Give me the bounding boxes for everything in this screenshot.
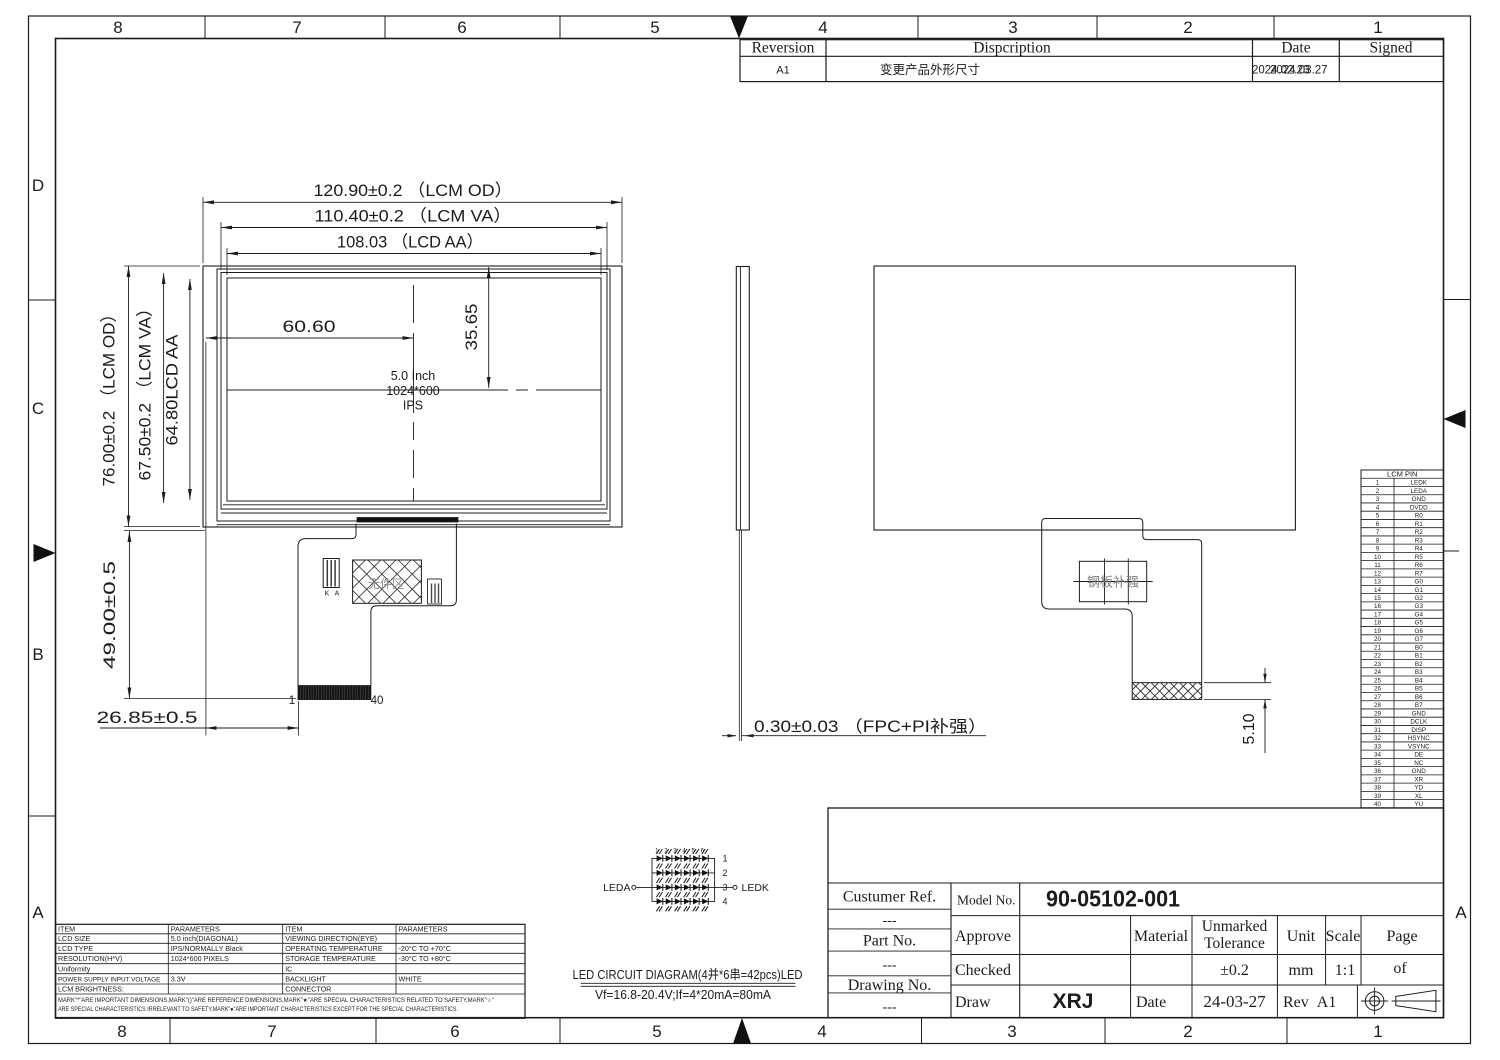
svg-text:Reversion: Reversion (752, 40, 815, 57)
svg-text:1: 1 (723, 854, 728, 864)
svg-text:A: A (1455, 903, 1467, 922)
svg-text:40: 40 (371, 695, 384, 707)
svg-text:B2: B2 (1415, 661, 1423, 668)
svg-text:3: 3 (1008, 18, 1017, 37)
svg-text:8: 8 (117, 1022, 126, 1041)
svg-text:钢板补强: 钢板补强 (1087, 575, 1139, 590)
svg-text:Scale: Scale (1326, 928, 1361, 945)
svg-text:B6: B6 (1415, 694, 1423, 701)
svg-text:34: 34 (1374, 752, 1382, 759)
svg-text:39: 39 (1374, 793, 1382, 800)
svg-text:G7: G7 (1415, 636, 1424, 643)
svg-text:5: 5 (652, 1022, 661, 1041)
svg-text:7: 7 (1376, 529, 1380, 536)
svg-text:LCM BRIGHTNESS:: LCM BRIGHTNESS: (58, 985, 124, 994)
svg-text:15: 15 (1374, 595, 1382, 602)
svg-text:DVDD: DVDD (1410, 504, 1428, 511)
svg-text:3: 3 (1376, 496, 1380, 503)
svg-text:Rev A1: Rev A1 (1283, 994, 1336, 1011)
svg-text:9: 9 (1376, 546, 1380, 553)
svg-text:40: 40 (1374, 801, 1382, 808)
svg-text:2: 2 (1183, 1022, 1192, 1041)
svg-text:90-05102-001: 90-05102-001 (1046, 886, 1180, 912)
svg-text:D: D (32, 176, 44, 195)
svg-text:R3: R3 (1415, 537, 1424, 544)
svg-text:PARAMETERS: PARAMETERS (171, 925, 220, 934)
svg-text:-20°C TO +70°C: -20°C TO +70°C (399, 944, 451, 953)
svg-text:33: 33 (1374, 743, 1382, 750)
svg-text:R2: R2 (1415, 529, 1424, 536)
svg-text:4: 4 (1376, 504, 1380, 511)
svg-text:DCLK: DCLK (1410, 719, 1428, 726)
svg-text:18: 18 (1374, 620, 1382, 627)
svg-text:of: of (1393, 960, 1407, 977)
svg-text:R0: R0 (1415, 513, 1424, 520)
svg-text:A: A (32, 903, 44, 922)
svg-text:30: 30 (1374, 719, 1382, 726)
svg-text:17: 17 (1374, 611, 1382, 618)
svg-text:Tolerance: Tolerance (1204, 935, 1265, 952)
svg-text:G1: G1 (1415, 587, 1424, 594)
svg-text:31: 31 (1374, 727, 1382, 734)
svg-text:G3: G3 (1415, 603, 1424, 610)
svg-text:LCD TYPE: LCD TYPE (58, 944, 93, 953)
svg-text:32: 32 (1374, 735, 1382, 742)
svg-text:26.85±0.5: 26.85±0.5 (97, 708, 198, 727)
svg-text:R1: R1 (1415, 521, 1424, 528)
svg-text:19: 19 (1374, 628, 1382, 635)
svg-text:38: 38 (1374, 785, 1382, 792)
svg-text:1: 1 (1373, 1022, 1382, 1041)
svg-text:22: 22 (1374, 653, 1382, 660)
svg-text:G2: G2 (1415, 595, 1424, 602)
svg-text:C: C (32, 399, 44, 418)
svg-text:VSYNC: VSYNC (1408, 743, 1430, 750)
svg-text:Date: Date (1136, 994, 1166, 1011)
svg-text:ITEM: ITEM (58, 925, 75, 934)
svg-text:1:1: 1:1 (1335, 962, 1355, 979)
svg-text:ITEM: ITEM (285, 925, 302, 934)
svg-text:Dispcription: Dispcription (973, 40, 1051, 57)
svg-text:16: 16 (1374, 603, 1382, 610)
svg-text:4: 4 (723, 897, 728, 907)
svg-text:无件区: 无件区 (368, 577, 404, 591)
svg-text:LED CIRCUIT DIAGRAM(4并*6串=42pc: LED CIRCUIT DIAGRAM(4并*6串=42pcs)LED (573, 967, 803, 982)
svg-text:27: 27 (1374, 694, 1382, 701)
svg-text:Uniformity: Uniformity (58, 964, 91, 973)
svg-text:Unmarked: Unmarked (1202, 918, 1268, 935)
svg-text:G6: G6 (1415, 628, 1424, 635)
svg-text:11: 11 (1374, 562, 1381, 569)
svg-text:2: 2 (1376, 488, 1380, 495)
svg-text:60.60: 60.60 (283, 317, 336, 336)
svg-text:DE: DE (1414, 752, 1423, 759)
svg-text:0.30±0.03 （FPC+PI补强）: 0.30±0.03 （FPC+PI补强） (754, 717, 987, 736)
svg-text:ARE SPECIAL CHARACTERISTICS IR: ARE SPECIAL CHARACTERISTICS IRRELEVANT T… (58, 1006, 458, 1013)
svg-text:B1: B1 (1415, 653, 1423, 660)
svg-text:mm: mm (1289, 962, 1314, 979)
svg-text:---: --- (883, 1000, 897, 1015)
svg-text:49.00±0.5: 49.00±0.5 (100, 561, 119, 669)
svg-text:B: B (32, 645, 43, 664)
svg-text:B3: B3 (1415, 669, 1423, 676)
svg-text:20: 20 (1374, 636, 1382, 643)
svg-text:LCD SIZE: LCD SIZE (58, 934, 91, 943)
svg-text:Signed: Signed (1369, 40, 1412, 57)
svg-text:Unit: Unit (1287, 928, 1316, 945)
svg-text:DISP: DISP (1411, 727, 1426, 734)
svg-text:PARAMETERS: PARAMETERS (399, 925, 448, 934)
svg-text:IC: IC (285, 964, 292, 973)
svg-text:HSYNC: HSYNC (1408, 735, 1430, 742)
svg-text:G0: G0 (1415, 579, 1424, 586)
svg-text:Drawing No.: Drawing No. (848, 977, 932, 994)
svg-text:120.90±0.2 （LCM OD）: 120.90±0.2 （LCM OD） (314, 181, 513, 200)
svg-text:B7: B7 (1415, 702, 1423, 709)
svg-text:GND: GND (1412, 496, 1426, 503)
svg-text:35.65: 35.65 (462, 304, 481, 351)
svg-text:36: 36 (1374, 768, 1382, 775)
svg-text:28: 28 (1374, 702, 1382, 709)
svg-text:Draw: Draw (955, 994, 991, 1011)
svg-text:LCM PIN: LCM PIN (1387, 470, 1417, 479)
svg-text:RESOLUTION(H*V): RESOLUTION(H*V) (58, 954, 122, 963)
svg-text:8: 8 (113, 18, 122, 37)
svg-text:-30°C TO +80°C: -30°C TO +80°C (399, 954, 451, 963)
svg-text:YU: YU (1414, 801, 1423, 808)
svg-text:29: 29 (1374, 710, 1382, 717)
svg-text:1: 1 (1376, 480, 1380, 487)
svg-text:LEDK: LEDK (742, 882, 769, 894)
svg-text:12: 12 (1374, 570, 1382, 577)
svg-text:5.0 Inch: 5.0 Inch (391, 369, 436, 383)
svg-text:POWER SUPPLY INPUT VOLTAGE: POWER SUPPLY INPUT VOLTAGE (58, 976, 160, 983)
svg-text:YD: YD (1414, 785, 1423, 792)
svg-text:25: 25 (1374, 677, 1382, 684)
svg-text:A: A (335, 591, 340, 598)
svg-text:7: 7 (292, 18, 301, 37)
svg-text:NC: NC (1414, 760, 1424, 767)
svg-text:LEDK: LEDK (1411, 480, 1428, 487)
svg-text:5.10: 5.10 (1241, 713, 1258, 744)
svg-text:1: 1 (1373, 18, 1382, 37)
svg-text:1024*600: 1024*600 (386, 384, 440, 398)
svg-text:13: 13 (1374, 579, 1382, 586)
svg-text:STORAGE TEMPERATURE: STORAGE TEMPERATURE (285, 954, 376, 963)
svg-text:XR: XR (1414, 776, 1423, 783)
svg-text:±0.2: ±0.2 (1220, 962, 1249, 979)
svg-text:IPS: IPS (403, 399, 423, 413)
svg-text:Model No.: Model No. (957, 893, 1016, 908)
svg-text:4: 4 (818, 18, 827, 37)
svg-text:6: 6 (1376, 521, 1380, 528)
svg-text:5.0 inch(DIAGONAL): 5.0 inch(DIAGONAL) (171, 934, 238, 943)
svg-text:8: 8 (1376, 537, 1380, 544)
svg-text:LEDA: LEDA (603, 882, 630, 894)
svg-text:5: 5 (650, 18, 659, 37)
svg-text:Part No.: Part No. (863, 933, 916, 950)
svg-text:WHITE: WHITE (399, 974, 422, 983)
svg-text:A1: A1 (776, 65, 789, 77)
svg-text:---: --- (883, 914, 897, 929)
svg-text:4: 4 (817, 1022, 826, 1041)
svg-text:6: 6 (457, 18, 466, 37)
svg-text:Checked: Checked (955, 962, 1011, 979)
svg-text:5: 5 (1376, 513, 1380, 520)
svg-text:2: 2 (1183, 18, 1192, 37)
svg-text:Vf=16.8-20.4V;If=4*20mA=80mA: Vf=16.8-20.4V;If=4*20mA=80mA (595, 987, 771, 1002)
svg-text:37: 37 (1374, 776, 1382, 783)
svg-text:110.40±0.2 （LCM VA）: 110.40±0.2 （LCM VA） (315, 207, 512, 226)
svg-text:7: 7 (267, 1022, 276, 1041)
svg-text:B0: B0 (1415, 644, 1423, 651)
svg-text:VIEWING DIRECTION(EYE): VIEWING DIRECTION(EYE) (285, 934, 377, 943)
svg-text:1: 1 (289, 695, 295, 707)
svg-text:24: 24 (1374, 669, 1382, 676)
svg-text:R6: R6 (1415, 562, 1424, 569)
svg-text:Custumer Ref.: Custumer Ref. (843, 889, 936, 906)
svg-text:XL: XL (1415, 793, 1423, 800)
svg-text:LEDA: LEDA (1411, 488, 1428, 495)
svg-text:14: 14 (1374, 587, 1382, 594)
svg-text:变更产品外形尺寸: 变更产品外形尺寸 (880, 62, 980, 77)
svg-text:6: 6 (450, 1022, 459, 1041)
svg-text:R7: R7 (1415, 570, 1424, 577)
svg-text:GND: GND (1412, 710, 1426, 717)
svg-text:2: 2 (723, 868, 728, 878)
svg-text:26: 26 (1374, 686, 1382, 693)
svg-text:2024.03.27: 2024.03.27 (1270, 65, 1328, 77)
svg-text:G4: G4 (1415, 611, 1424, 618)
svg-text:B5: B5 (1415, 686, 1423, 693)
svg-text:K: K (325, 591, 330, 598)
svg-text:24-03-27: 24-03-27 (1203, 992, 1266, 1011)
svg-text:10: 10 (1374, 554, 1382, 561)
svg-text:108.03 （LCD AA）: 108.03 （LCD AA） (337, 233, 483, 252)
svg-text:BACKLIGHT: BACKLIGHT (285, 974, 326, 983)
svg-text:1024*600 PIXELS: 1024*600 PIXELS (171, 954, 229, 963)
svg-text:3.3V: 3.3V (171, 974, 186, 983)
svg-text:CONNECTOR: CONNECTOR (285, 985, 331, 994)
svg-text:B4: B4 (1415, 677, 1423, 684)
svg-text:IPS/NORMALLY Black: IPS/NORMALLY Black (171, 944, 243, 953)
svg-text:Page: Page (1386, 928, 1417, 945)
svg-text:Material: Material (1134, 928, 1189, 945)
svg-text:GND: GND (1412, 768, 1426, 775)
svg-text:64.80LCD AA: 64.80LCD AA (163, 334, 182, 446)
svg-text:76.00±0.2 （LCM OD）: 76.00±0.2 （LCM OD） (100, 306, 119, 487)
svg-text:67.50±0.2 （LCM VA）: 67.50±0.2 （LCM VA） (136, 300, 155, 481)
svg-text:21: 21 (1374, 644, 1382, 651)
svg-text:35: 35 (1374, 760, 1382, 767)
svg-text:Approve: Approve (955, 928, 1011, 945)
svg-text:R4: R4 (1415, 546, 1424, 553)
svg-text:3: 3 (1007, 1022, 1016, 1041)
svg-text:R5: R5 (1415, 554, 1424, 561)
svg-text:G5: G5 (1415, 620, 1424, 627)
svg-text:OPERATING TEMPERATURE: OPERATING TEMPERATURE (285, 944, 383, 953)
svg-text:Date: Date (1281, 40, 1310, 57)
svg-text:---: --- (883, 958, 897, 973)
svg-text:23: 23 (1374, 661, 1382, 668)
svg-text:XRJ: XRJ (1053, 990, 1094, 1013)
svg-text:MARK"*"ARE IMPORTANT DIMENSION: MARK"*"ARE IMPORTANT DIMENSIONS,MARK"()"… (58, 997, 494, 1004)
